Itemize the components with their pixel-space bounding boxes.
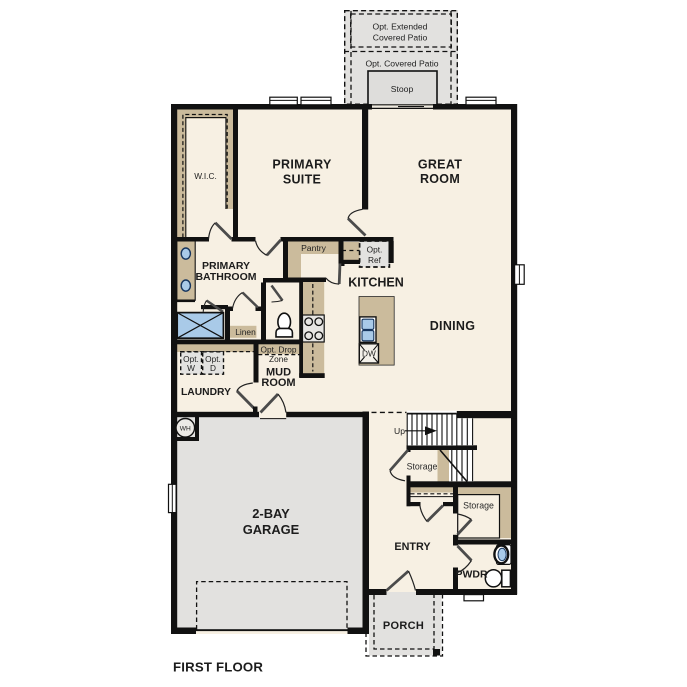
svg-text:PRIMARY: PRIMARY xyxy=(272,158,332,172)
svg-text:LAUNDRY: LAUNDRY xyxy=(181,387,231,398)
svg-text:Opt. Covered Patio: Opt. Covered Patio xyxy=(365,59,438,69)
svg-text:Ref: Ref xyxy=(368,255,382,265)
svg-text:PORCH: PORCH xyxy=(383,620,424,632)
svg-text:Up: Up xyxy=(394,426,405,436)
svg-text:KITCHEN: KITCHEN xyxy=(348,276,404,290)
svg-text:Opt.: Opt. xyxy=(367,245,383,255)
svg-text:Zone: Zone xyxy=(269,354,288,364)
svg-text:W.I.C.: W.I.C. xyxy=(194,171,217,181)
svg-text:Opt. Extended: Opt. Extended xyxy=(373,22,428,32)
svg-text:WH: WH xyxy=(180,425,191,432)
svg-text:D: D xyxy=(210,363,216,373)
svg-text:Linen: Linen xyxy=(235,327,256,337)
svg-text:Covered Patio: Covered Patio xyxy=(373,33,428,43)
svg-text:Stoop: Stoop xyxy=(391,84,414,94)
svg-text:BATHROOM: BATHROOM xyxy=(195,271,256,283)
svg-text:DW: DW xyxy=(362,349,376,359)
svg-text:2-BAY: 2-BAY xyxy=(252,506,290,521)
svg-text:ROOM: ROOM xyxy=(261,377,295,389)
svg-text:SUITE: SUITE xyxy=(283,173,321,187)
svg-text:ENTRY: ENTRY xyxy=(394,541,431,553)
svg-text:Pantry: Pantry xyxy=(301,243,327,253)
svg-text:Storage: Storage xyxy=(407,462,438,472)
svg-text:GREAT: GREAT xyxy=(418,158,462,172)
svg-text:DINING: DINING xyxy=(430,319,476,333)
svg-text:GARAGE: GARAGE xyxy=(243,522,300,537)
svg-text:W: W xyxy=(187,363,195,373)
svg-text:ROOM: ROOM xyxy=(420,172,460,186)
svg-text:FIRST FLOOR: FIRST FLOOR xyxy=(173,660,263,675)
svg-text:Storage: Storage xyxy=(463,501,494,511)
svg-text:PWDR: PWDR xyxy=(455,569,487,581)
